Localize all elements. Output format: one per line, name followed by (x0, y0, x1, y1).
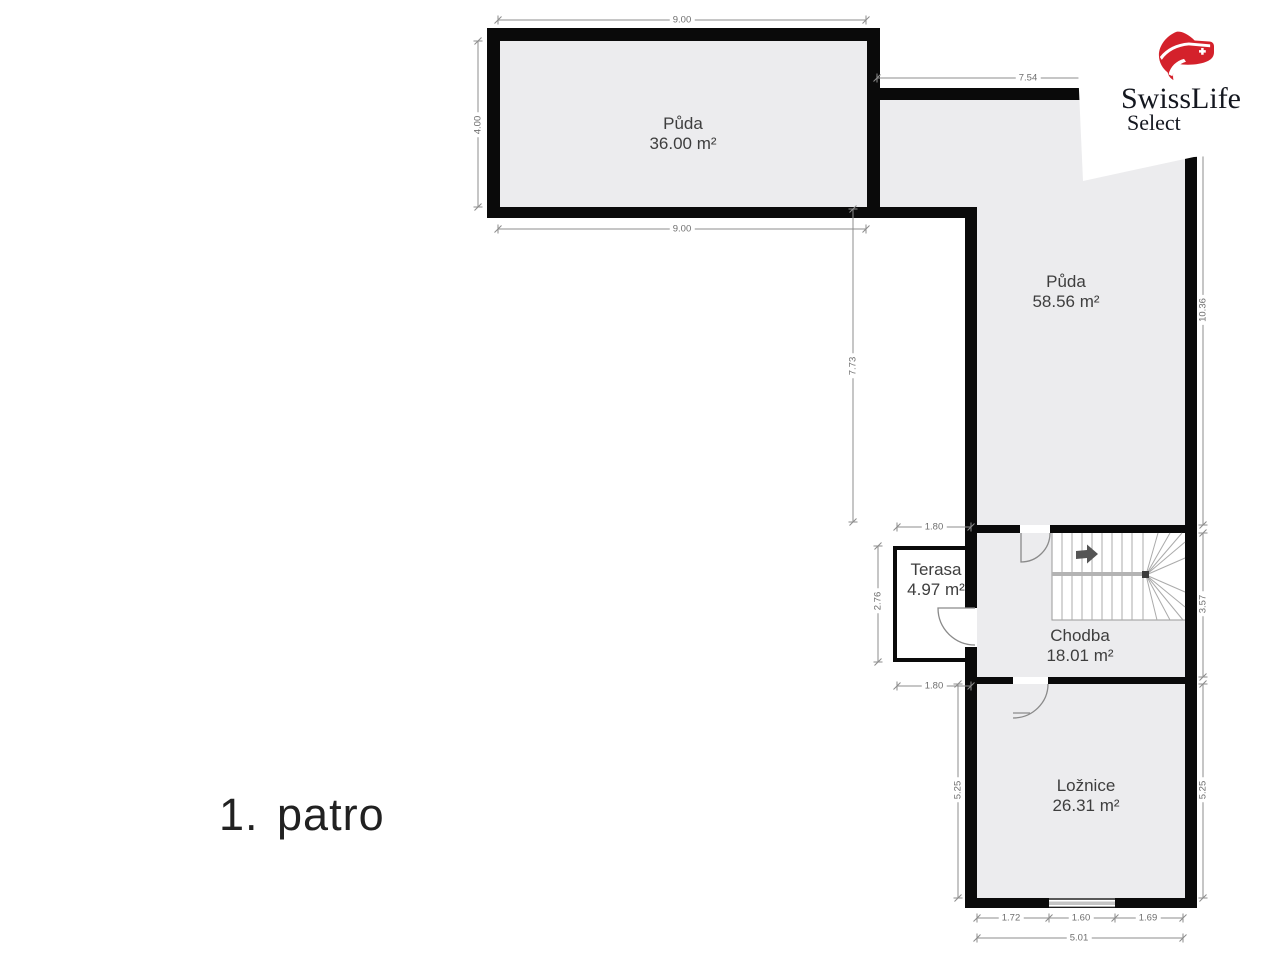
room-label-hallway: Chodba 18.01 m² (1046, 626, 1113, 666)
terrace-wall (893, 658, 965, 662)
room-name: Půda (1032, 272, 1099, 292)
floorplan-canvas: Půda 36.00 m² Půda 58.56 m² Terasa 4.97 … (0, 0, 1280, 960)
dim-label-terrace-height: 2.76 (873, 589, 884, 614)
room-name: Terasa (907, 560, 965, 580)
stair-newel (1142, 571, 1149, 578)
terrace-wall (893, 546, 897, 662)
room-area: 18.01 m² (1046, 646, 1113, 666)
wall (965, 207, 977, 608)
bedroom-window (1049, 898, 1115, 908)
staircase (1052, 533, 1185, 620)
floor-title: 1. patro (219, 789, 385, 841)
room-label-attic-small: Půda 36.00 m² (649, 114, 716, 154)
dim-label-attic-small-width-top: 9.00 (670, 15, 695, 26)
dim-label-attic-large-height-left: 7.73 (848, 354, 859, 379)
wall (487, 28, 880, 41)
dim-label-bedroom-segment-left: 1.72 (999, 913, 1024, 924)
wall (1185, 88, 1197, 908)
room-label-bedroom: Ložnice 26.31 m² (1052, 776, 1119, 816)
swisslife-flag-icon (1156, 30, 1214, 82)
dim-label-attic-small-height: 4.00 (473, 113, 484, 138)
wall (965, 525, 1020, 533)
dim-label-bedroom-width-total: 5.01 (1067, 933, 1092, 944)
wall (487, 207, 977, 218)
wall (1050, 525, 1197, 533)
room-name: Chodba (1046, 626, 1113, 646)
dim-label-bedroom-window-width: 1.60 (1069, 913, 1094, 924)
dim-label-terrace-width-top: 1.80 (922, 522, 947, 533)
wall (487, 28, 500, 218)
dim-label-attic-large-height-right: 10.36 (1198, 295, 1209, 325)
room-label-terrace: Terasa 4.97 m² (907, 560, 965, 600)
room-area: 36.00 m² (649, 134, 716, 154)
room-name: Půda (649, 114, 716, 134)
dim-label-attic-large-width: 7.54 (1016, 73, 1041, 84)
dim-label-bedroom-height-right: 5.25 (1198, 778, 1209, 803)
dim-label-terrace-width-bottom: 1.80 (922, 681, 947, 692)
wall (867, 28, 880, 218)
dim-label-bedroom-height-left: 5.25 (953, 778, 964, 803)
room-label-attic-large: Půda 58.56 m² (1032, 272, 1099, 312)
room-area: 4.97 m² (907, 580, 965, 600)
wall (965, 898, 1049, 908)
room-floors (500, 41, 1185, 898)
dim-label-hallway-height: 3.57 (1198, 592, 1209, 617)
room-name: Ložnice (1052, 776, 1119, 796)
wall (965, 677, 1013, 684)
dim-label-bedroom-segment-right: 1.69 (1136, 913, 1161, 924)
wall (1115, 898, 1197, 908)
room-area: 58.56 m² (1032, 292, 1099, 312)
terrace-wall (893, 546, 965, 550)
wall (1048, 677, 1197, 684)
room-area: 26.31 m² (1052, 796, 1119, 816)
dim-label-attic-small-width-bottom: 9.00 (670, 224, 695, 235)
stair-rail (1052, 572, 1146, 576)
swisslife-product-text: Select (1127, 112, 1181, 134)
